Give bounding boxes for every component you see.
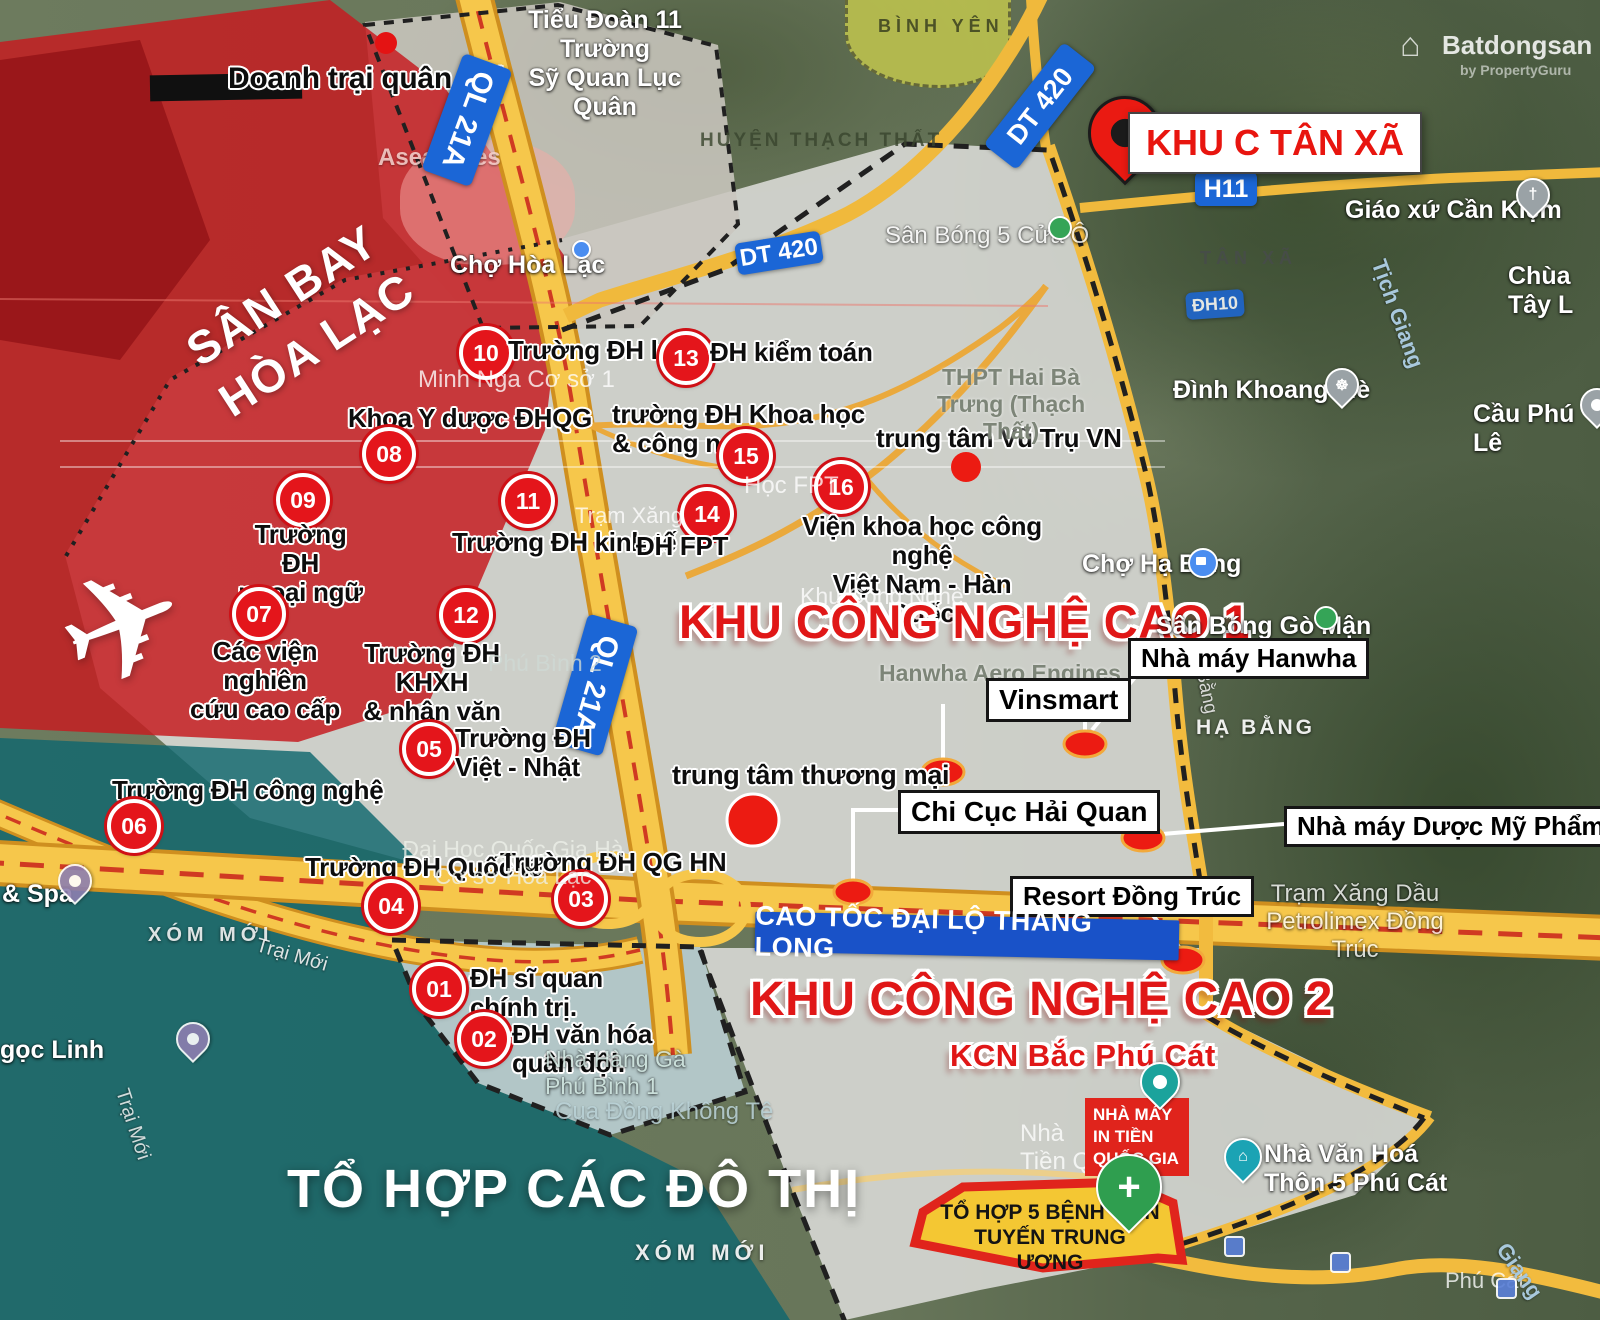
watermark-logo-icon: ⌂ xyxy=(1400,26,1421,65)
poi-06-circle[interactable]: 06 xyxy=(107,799,161,853)
poi-11-circle[interactable]: 11 xyxy=(501,474,555,528)
map-canvas[interactable]: ✈ SÂN BAY HÒA LẠC Tiểu Đoàn 11 Trường Sỹ… xyxy=(0,0,1600,1320)
map-label-tan-xa: TÂN XÃ xyxy=(1200,248,1297,269)
map-label-tieu-doan-11: Tiểu Đoàn 11 Trường Sỹ Quan Lục Quân xyxy=(505,6,705,122)
poi-14-label: ĐH FPT xyxy=(636,532,728,561)
kcn-bac-phu-cat-title: KCN Bắc Phú Cát xyxy=(950,1040,1216,1071)
map-label-phu-binh-2: Phú Bình 2 xyxy=(488,650,602,677)
road-badge-dh10: ĐH10 xyxy=(1185,289,1245,320)
poi-13-label: ĐH kiểm toán xyxy=(710,338,873,367)
san-bong-go-man-pin[interactable] xyxy=(1314,606,1338,630)
map-label-huyen-thach-that: HUYỆN THẠCH THẤT xyxy=(700,130,942,152)
map-label-nha-tien-q: Nhà Tiền Q xyxy=(1020,1120,1091,1176)
poi-05-circle[interactable]: 05 xyxy=(402,722,456,776)
map-label-nha-van-hoa: Nhà Văn Hoá Thôn 5 Phú Cát xyxy=(1264,1140,1447,1198)
site-marker-customs xyxy=(834,880,872,904)
map-label-hoc-fpt: Học FPT xyxy=(744,472,839,500)
mall-label: trung tâm thương mại xyxy=(672,760,949,790)
map-label-tram-xang: Trạm Xăng xyxy=(575,503,683,529)
poi-12-circle[interactable]: 12 xyxy=(439,588,493,642)
map-label-ha-bang: HẠ BẰNG xyxy=(1196,716,1315,740)
map-label-san-bong-go-man: Sân Bóng Gò Mận xyxy=(1156,612,1371,641)
transit-poi[interactable] xyxy=(1224,1236,1245,1257)
poi-01-circle[interactable]: 01 xyxy=(412,962,466,1016)
map-label-xom-moi-left: XÓM MỚI xyxy=(148,924,273,947)
site-marker-mall xyxy=(727,794,779,846)
map-label-thpt: THPT Hai Bà Trưng (Thạch Thất) xyxy=(916,364,1106,445)
customs-box: Chi Cục Hải Quan xyxy=(898,790,1160,834)
poi-06-label: Trường ĐH công nghệ xyxy=(112,776,383,805)
site-marker-space-center xyxy=(951,452,981,482)
watermark-brand: Batdongsan xyxy=(1442,30,1592,61)
transit-poi[interactable] xyxy=(1330,1252,1351,1273)
map-label-dai-hoc-qg: Đại Học Quốc Gia Hà Cơ sở Hòa Lạc xyxy=(398,836,628,890)
hitech2-title: KHU CÔNG NGHỆ CAO 2 xyxy=(750,976,1333,1024)
pharma-box: Nhà máy Dược Mỹ Phẩm C xyxy=(1284,806,1600,847)
transit-poi[interactable] xyxy=(1496,1278,1517,1299)
san-bong-5-pin[interactable] xyxy=(1048,216,1072,240)
poi-13-circle[interactable]: 13 xyxy=(659,331,713,385)
road-badge-h11: H11 xyxy=(1195,172,1257,206)
site-marker-vinsmart xyxy=(1064,731,1106,757)
map-label-ngoc-linh: gọc Linh xyxy=(0,1036,104,1065)
cho-ha-bang-store-pin[interactable] xyxy=(1188,548,1218,578)
poi-07-circle[interactable]: 07 xyxy=(232,587,286,641)
map-label-minh-nga: Minh Nga Cơ sở 1 xyxy=(418,366,615,394)
map-label-chua-tay: Chùa Tây L xyxy=(1508,262,1600,320)
map-label-nha-hang-ga: Nhà Hàng Gà Phú Bình 1 xyxy=(545,1046,686,1100)
map-label-xom-moi-right: XÓM MỚI xyxy=(635,1240,769,1266)
thang-long-banner: CAO TỐC ĐẠI LỘ THĂNG LONG xyxy=(755,912,1180,961)
poi-07-label: Các viện nghiên cứu cao cấp xyxy=(185,637,345,724)
cho-hoa-lac-pin[interactable] xyxy=(572,240,591,259)
urban-complex-title: TỔ HỢP CÁC ĐÔ THỊ xyxy=(287,1158,861,1220)
poi-02-circle[interactable]: 02 xyxy=(457,1012,511,1066)
poi-08-circle[interactable]: 08 xyxy=(362,427,416,481)
map-label-cua-dong: Cua Đồng Không Tê xyxy=(555,1098,773,1126)
map-label-petrolimex: Trạm Xăng Dầu Petrolimex Đồng Trúc xyxy=(1245,880,1465,964)
hanwha-box: Nhà máy Hanwha xyxy=(1128,638,1369,679)
watermark-sub: by PropertyGuru xyxy=(1460,62,1571,78)
map-label-binh-yen: BÌNH YÊN xyxy=(878,16,1004,37)
khu-c-tan-xa-box: KHU C TÂN XÃ xyxy=(1128,112,1422,174)
vinsmart-box: Vinsmart xyxy=(986,678,1131,722)
military-camp-dot xyxy=(375,32,397,54)
poi-05-label: Trường ĐH Việt - Nhật xyxy=(455,724,591,782)
